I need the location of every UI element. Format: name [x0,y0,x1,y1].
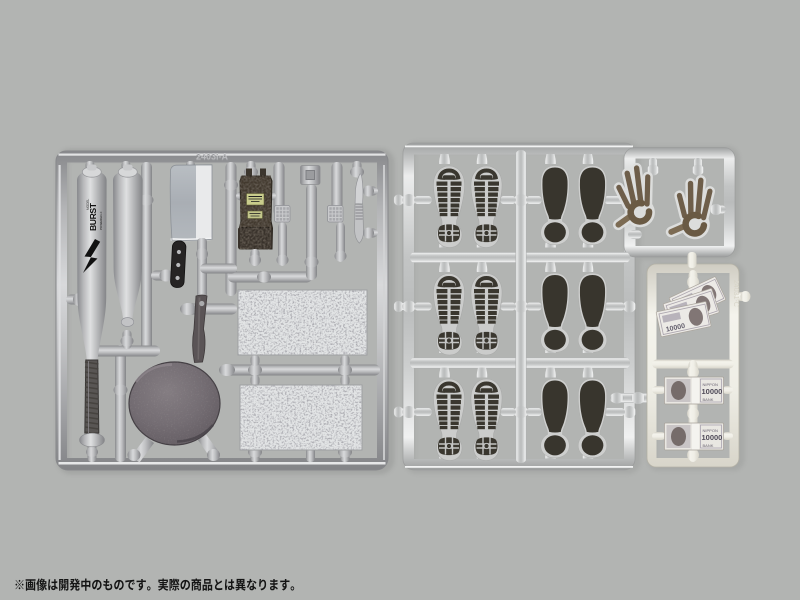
svg-text:24031-C: 24031-C [732,280,739,307]
svg-text:NIPPON: NIPPON [703,382,718,387]
svg-text:BANK: BANK [703,397,714,402]
svg-text:POWERED-X: POWERED-X [99,211,103,230]
svg-text:10000: 10000 [702,387,723,396]
svg-text:2403i-A: 2403i-A [196,152,229,162]
svg-text:MODEL: MODEL [86,198,90,210]
svg-text:BANK: BANK [703,443,714,448]
svg-text:NIPPON: NIPPON [703,428,718,433]
svg-text:10000: 10000 [702,433,723,442]
